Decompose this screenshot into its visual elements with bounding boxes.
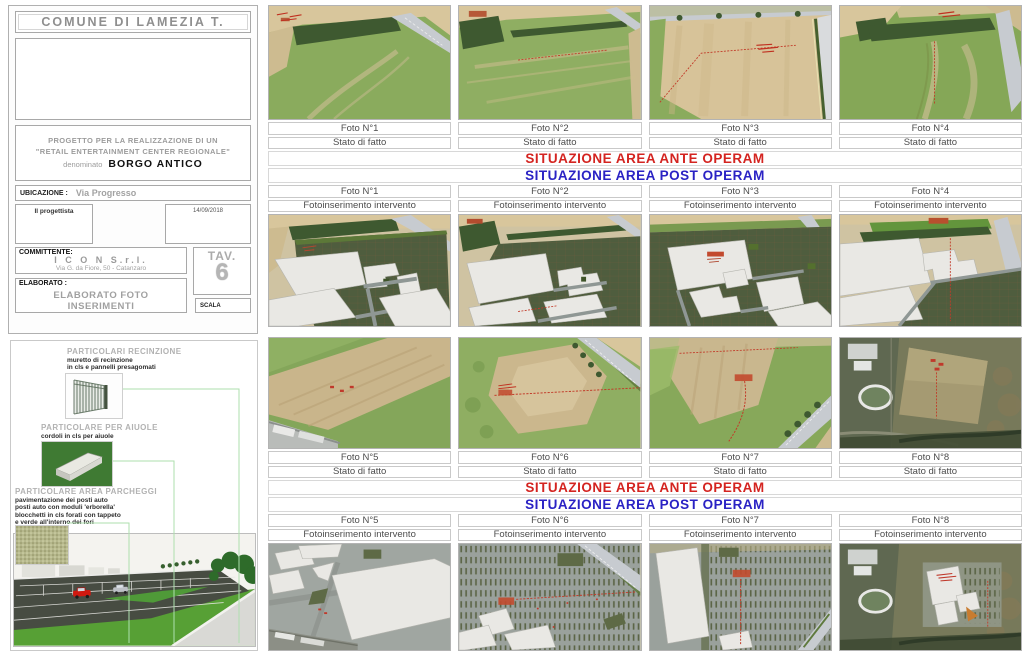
photo-foto5-stato — [268, 337, 451, 449]
photo-number-label: Foto N°6 — [458, 514, 641, 527]
photo-number-label: Foto N°2 — [458, 122, 641, 135]
project-name-row: denominatoBORGO ANTICO — [63, 158, 203, 170]
date-box: 14/09/2018 — [165, 204, 251, 244]
photo-foto3-inserimento — [649, 214, 832, 327]
tav-box: TAV. 6 — [193, 247, 251, 295]
photo-number-label: Foto N°7 — [649, 451, 832, 464]
project-name: BORGO ANTICO — [108, 158, 202, 170]
ubicazione-label: UBICAZIONE : — [20, 190, 68, 197]
scala-label: SCALA — [200, 303, 221, 309]
photo-insert-label: Fotoinserimento intervento — [458, 200, 641, 212]
parcheggi-title: PARTICOLARE AREA PARCHEGGI — [15, 487, 157, 496]
photo-state-label: Stato di fatto — [268, 466, 451, 478]
elaborato-box: ELABORATO : ELABORATO FOTO INSERIMENTI — [15, 278, 187, 313]
tav-number: 6 — [194, 263, 250, 282]
photo-insert-label: Fotoinserimento intervento — [268, 200, 451, 212]
aiuole-caption: cordoli in cls per aiuole — [41, 433, 114, 440]
progettista-box: Il progettista — [15, 204, 93, 244]
photo-foto4-inserimento — [839, 214, 1022, 327]
fence-drawing — [66, 374, 122, 418]
photo-number-label: Foto N°4 — [839, 185, 1022, 198]
photo-state-label: Stato di fatto — [268, 137, 451, 149]
parcheggi-captions: pavimentazione dei posti auto posti auto… — [15, 497, 121, 527]
photo-foto3-stato — [649, 5, 832, 120]
photo-section-1: Foto N°1 Foto N°2 Foto N°3 Foto N°4 Stat… — [268, 5, 1022, 327]
recinzione-title: PARTICOLARI RECINZIONE — [67, 347, 181, 356]
photo-foto8-inserimento — [839, 543, 1022, 651]
scala-box: SCALA — [195, 298, 251, 313]
photo-number-label: Foto N°4 — [839, 122, 1022, 135]
ubicazione-row: UBICAZIONE : Via Progresso — [15, 185, 251, 201]
photo-insert-label: Fotoinserimento intervento — [649, 200, 832, 212]
photo-state-label: Stato di fatto — [649, 466, 832, 478]
banner-post: SITUAZIONE AREA POST OPERAM — [268, 168, 1022, 183]
photo-foto8-stato — [839, 337, 1022, 449]
photo-insert-label: Fotoinserimento intervento — [839, 529, 1022, 541]
date-value: 14/09/2018 — [166, 208, 250, 214]
elaborato-label: ELABORATO : — [19, 280, 183, 287]
photo-number-label: Foto N°3 — [649, 185, 832, 198]
project-line2: "RETAIL ENTERTAINMENT CENTER REGIONALE" — [36, 147, 230, 156]
progettista-label: Il progettista — [16, 208, 92, 215]
logo-box — [15, 38, 251, 120]
paver-detail-image — [15, 525, 69, 565]
committente-address: Via G. da Fiore, 50 - Catanzaro — [19, 265, 183, 272]
fence-detail-image — [65, 373, 123, 419]
banner-ante: SITUAZIONE AREA ANTE OPERAM — [268, 151, 1022, 166]
photo-number-label: Foto N°1 — [268, 185, 451, 198]
photo-section-2: Foto N°5 Foto N°6 Foto N°7 Foto N°8 Stat… — [268, 337, 1022, 651]
photo-number-label: Foto N°5 — [268, 451, 451, 464]
photo-foto2-stato — [458, 5, 641, 120]
photo-state-label: Stato di fatto — [458, 137, 641, 149]
banner-post: SITUAZIONE AREA POST OPERAM — [268, 497, 1022, 512]
photo-insert-label: Fotoinserimento intervento — [458, 529, 641, 541]
drawing-sheet: COMUNE DI LAMEZIA T. PROGETTO PER LA REA… — [0, 0, 1024, 654]
curb-detail-image — [41, 441, 113, 487]
photo-foto6-stato — [458, 337, 641, 449]
elaborato-value: ELABORATO FOTO INSERIMENTI — [19, 290, 183, 312]
comune-header: COMUNE DI LAMEZIA T. — [15, 11, 251, 33]
project-box: PROGETTO PER LA REALIZZAZIONE DI UN "RET… — [15, 125, 251, 181]
photo-foto4-stato — [839, 5, 1022, 120]
title-block: COMUNE DI LAMEZIA T. PROGETTO PER LA REA… — [8, 5, 258, 334]
photo-number-label: Foto N°1 — [268, 122, 451, 135]
photo-number-label: Foto N°6 — [458, 451, 641, 464]
committente-name: I C O N S.r.l. — [19, 255, 183, 265]
photo-number-label: Foto N°2 — [458, 185, 641, 198]
paver-drawing — [16, 526, 68, 564]
recinzione-captions: muretto di recinzione in cls e pannelli … — [67, 357, 156, 372]
photo-state-label: Stato di fatto — [649, 137, 832, 149]
photo-state-label: Stato di fatto — [458, 466, 641, 478]
curb-drawing — [42, 442, 112, 486]
ubicazione-value: Via Progresso — [76, 188, 136, 198]
photo-number-label: Foto N°8 — [839, 451, 1022, 464]
banner-ante: SITUAZIONE AREA ANTE OPERAM — [268, 480, 1022, 495]
photo-number-label: Foto N°3 — [649, 122, 832, 135]
photo-state-label: Stato di fatto — [839, 137, 1022, 149]
photo-insert-label: Fotoinserimento intervento — [268, 529, 451, 541]
photo-number-label: Foto N°8 — [839, 514, 1022, 527]
photo-foto1-stato — [268, 5, 451, 120]
committente-box: COMMITTENTE: I C O N S.r.l. Via G. da Fi… — [15, 247, 187, 274]
project-prefix: denominato — [63, 160, 102, 169]
photo-foto7-stato — [649, 337, 832, 449]
photo-foto2-inserimento — [458, 214, 641, 327]
project-line1: PROGETTO PER LA REALIZZAZIONE DI UN — [48, 136, 218, 145]
details-panel: PARTICOLARI RECINZIONE muretto di recinz… — [10, 340, 258, 651]
photo-foto1-inserimento — [268, 214, 451, 327]
aiuole-title: PARTICOLARE PER AIUOLE — [41, 423, 158, 432]
photo-insert-label: Fotoinserimento intervento — [839, 200, 1022, 212]
photo-number-label: Foto N°7 — [649, 514, 832, 527]
photo-foto5-inserimento — [268, 543, 451, 651]
photo-state-label: Stato di fatto — [839, 466, 1022, 478]
photo-foto7-inserimento — [649, 543, 832, 651]
photo-number-label: Foto N°5 — [268, 514, 451, 527]
photo-foto6-inserimento — [458, 543, 641, 651]
photo-insert-label: Fotoinserimento intervento — [649, 529, 832, 541]
